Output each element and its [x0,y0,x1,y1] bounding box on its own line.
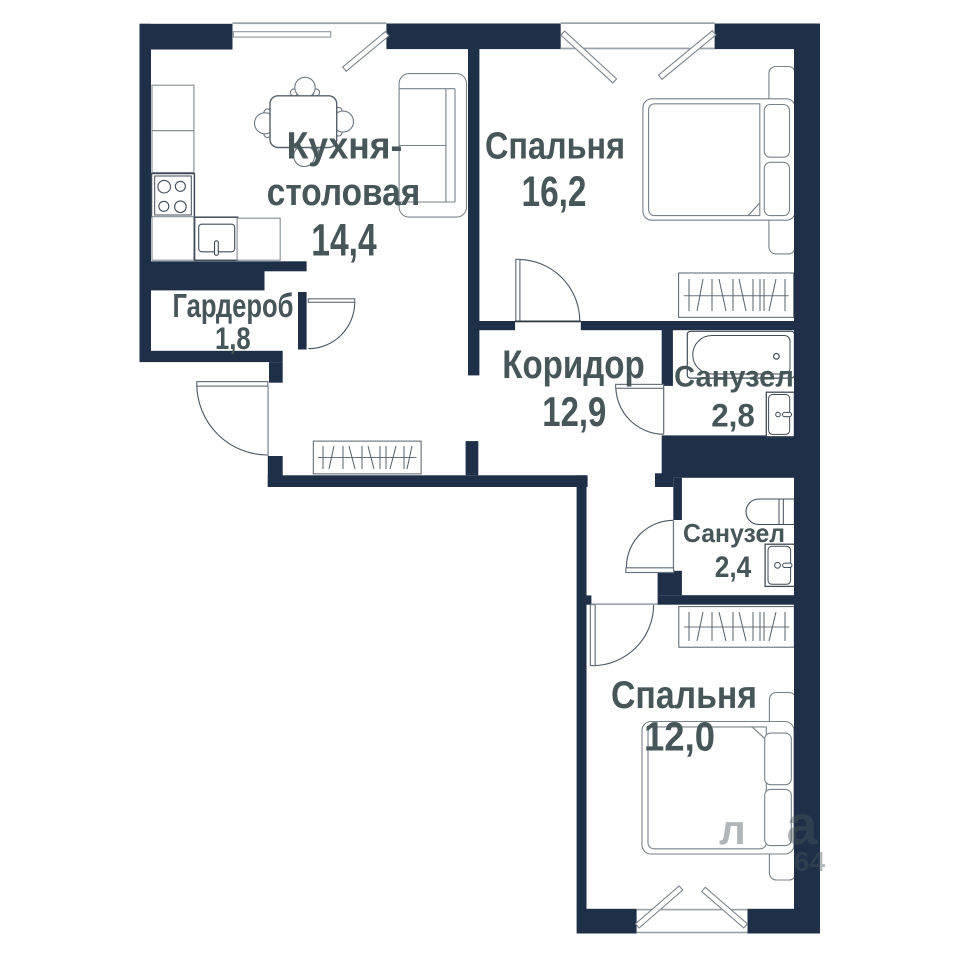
svg-text:столовая: столовая [267,172,420,214]
svg-text:1,8: 1,8 [215,320,251,356]
svg-text:л: л [719,806,746,853]
svg-text:2,8: 2,8 [711,398,755,434]
svg-text:14,4: 14,4 [311,215,376,266]
svg-text:Санузел: Санузел [674,361,794,394]
svg-text:16,2: 16,2 [522,168,587,216]
svg-text:64: 64 [794,846,826,877]
svg-text:Кухня-: Кухня- [287,125,403,167]
svg-text:12,9: 12,9 [542,388,606,435]
svg-text:12,0: 12,0 [644,714,715,760]
svg-text:Гардероб: Гардероб [173,287,294,324]
svg-text:Спальня: Спальня [485,125,625,167]
svg-text:Спальня: Спальня [611,674,757,717]
svg-text:Санузел: Санузел [683,518,785,548]
svg-text:Коридор: Коридор [502,343,645,387]
svg-text:2,4: 2,4 [715,551,752,584]
